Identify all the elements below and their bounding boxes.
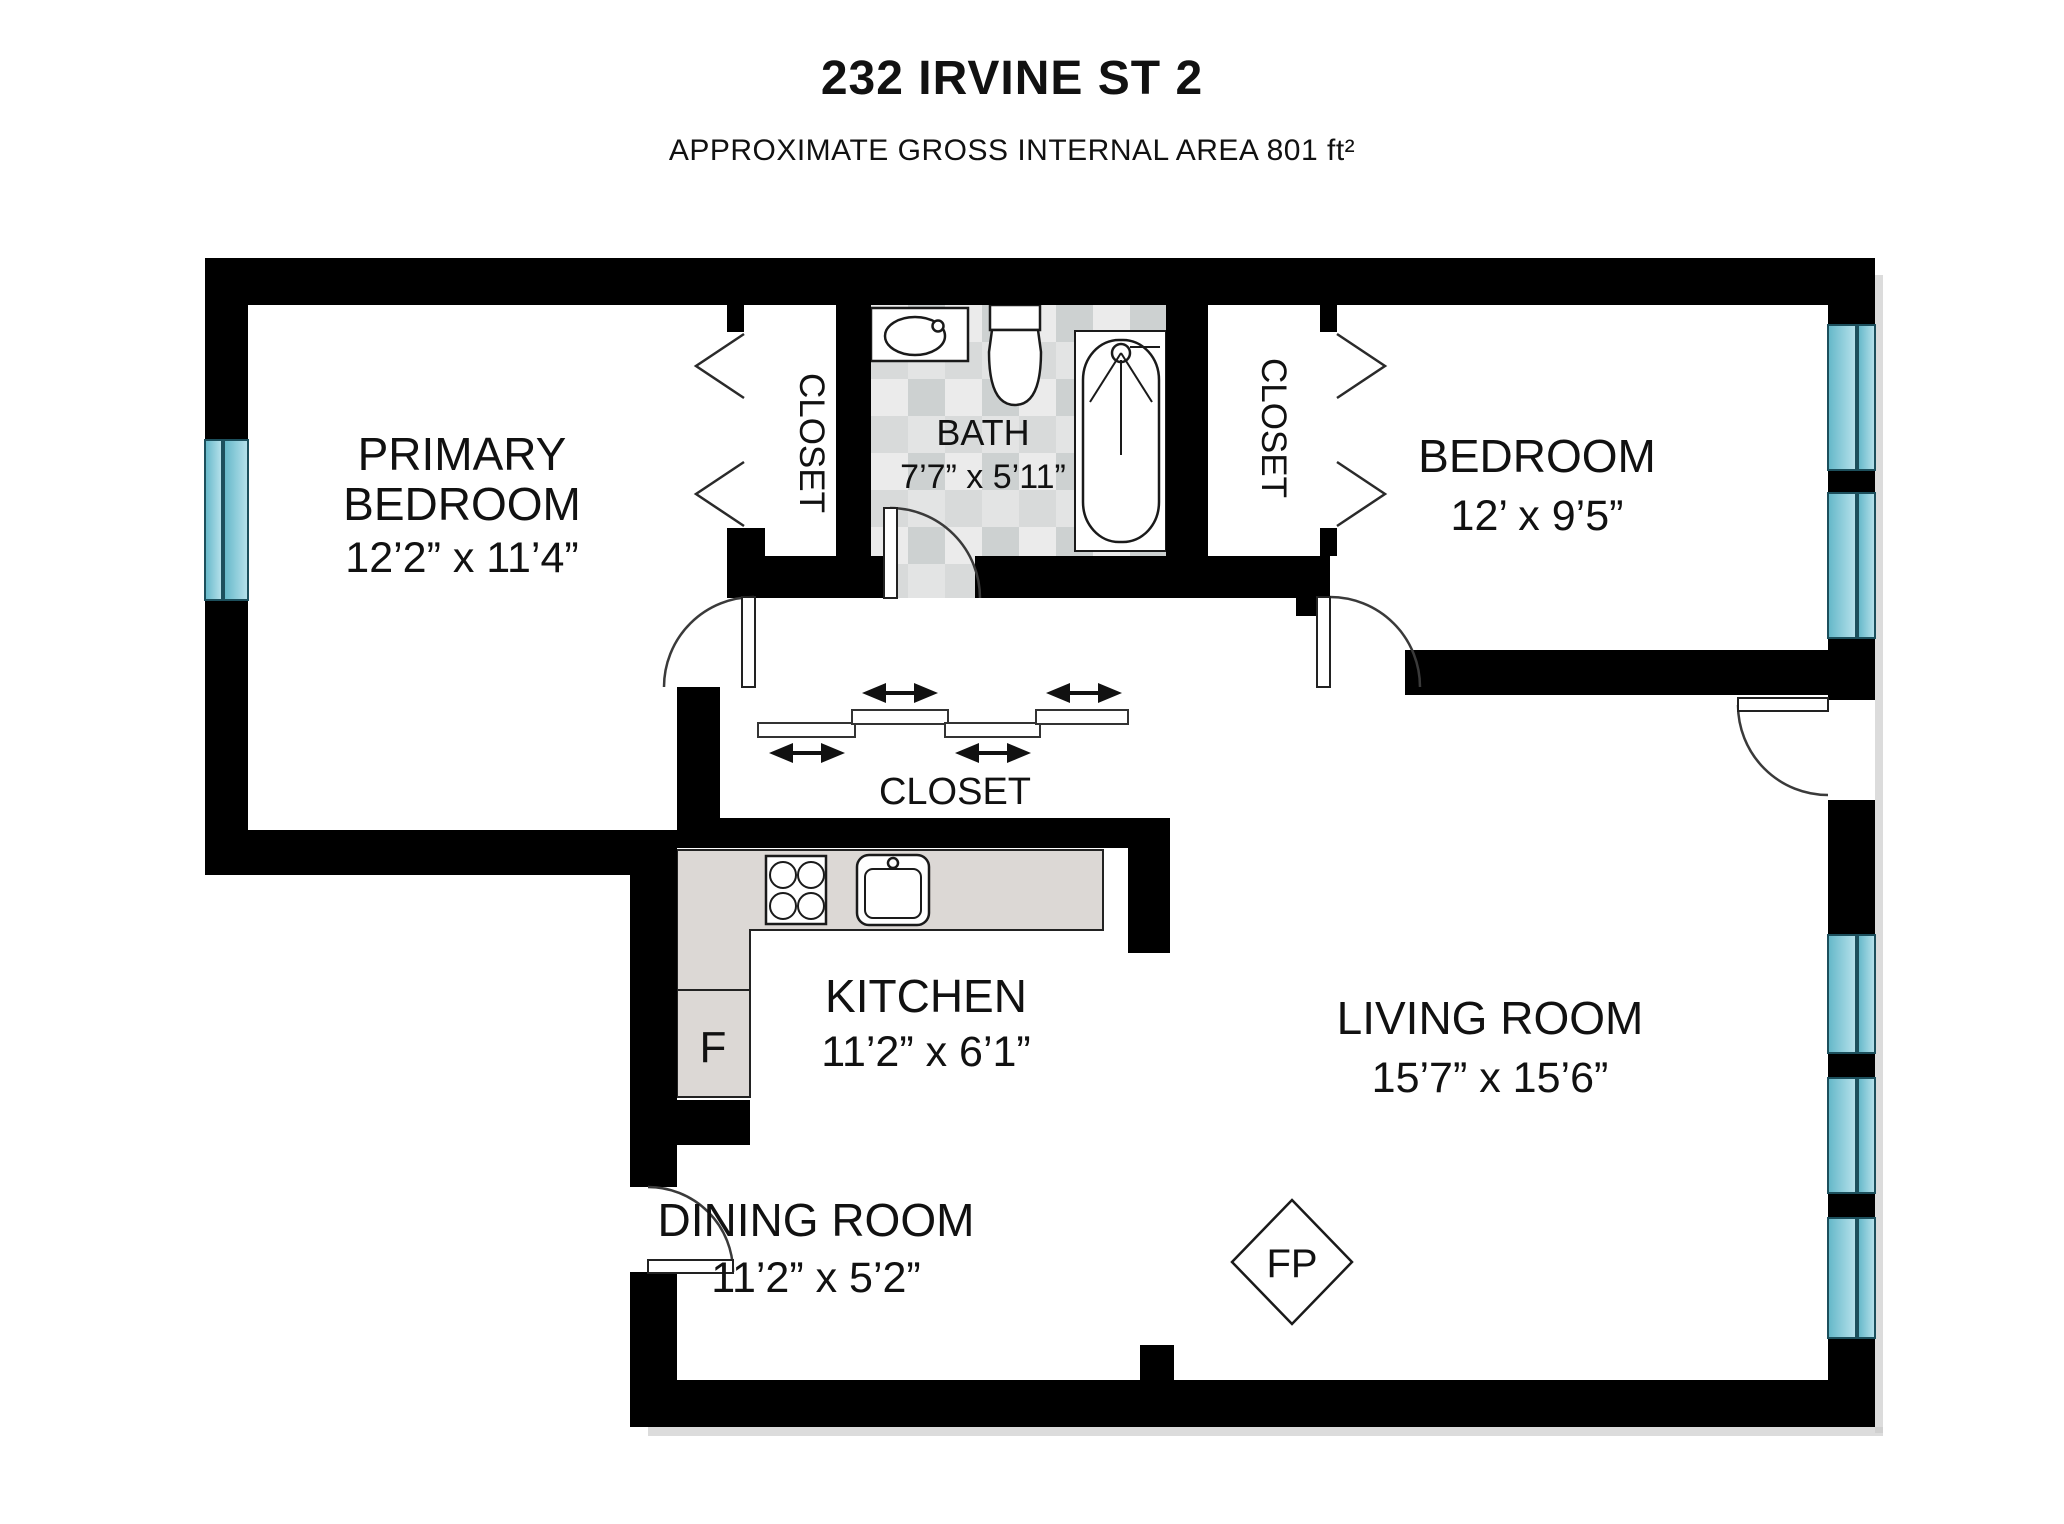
wall: [205, 258, 248, 440]
fireplace-marker: FP: [1266, 1242, 1317, 1286]
room-label-bedroom: BEDROOM: [1418, 430, 1656, 482]
wall: [975, 556, 1330, 598]
stove-icon: [766, 856, 826, 924]
room-dims-bedroom: 12’ x 9’5”: [1451, 492, 1624, 540]
bifold-door-icon: [696, 334, 744, 398]
bifold-door-icon: [1337, 462, 1385, 526]
wall: [1828, 800, 1875, 935]
wall-stub: [727, 305, 744, 332]
door-leaf: [742, 597, 755, 687]
floor-plan-page: 232 IRVINE ST 2 APPROXIMATE GROSS INTERN…: [0, 0, 2064, 1524]
wall: [1166, 305, 1208, 556]
wall-stub: [727, 528, 765, 556]
wall: [836, 305, 871, 598]
wall: [1828, 1193, 1875, 1218]
toilet-bowl-icon: [989, 330, 1041, 405]
room-label-closet-left: CLOSET: [792, 373, 831, 513]
wall: [1405, 650, 1828, 695]
room-label-primary-bedroom-1: PRIMARY: [358, 428, 567, 480]
slide-arrow-icon: [1046, 683, 1122, 703]
door-leaf: [1317, 597, 1330, 687]
page-subtitle: APPROXIMATE GROSS INTERNAL AREA 801 ft²: [669, 134, 1355, 167]
slide-arrow-icon: [862, 683, 938, 703]
floor-plan-svg: 232 IRVINE ST 2 APPROXIMATE GROSS INTERN…: [0, 0, 2064, 1524]
door-leaf: [1738, 698, 1828, 711]
fireplace: FP: [1232, 1200, 1352, 1324]
sliding-door-panel: [852, 710, 948, 724]
wall-stub: [1140, 1345, 1174, 1380]
window: [1828, 1078, 1875, 1193]
wall: [1828, 258, 1875, 325]
door-leaf: [884, 508, 897, 598]
room-dims-living-room: 15’7” x 15’6”: [1372, 1054, 1609, 1102]
bifold-door-icon: [1337, 334, 1385, 398]
shadow-right: [1875, 275, 1883, 1433]
room-label-primary-bedroom-2: BEDROOM: [343, 478, 581, 530]
fridge-marker: F: [700, 1023, 727, 1072]
wall: [205, 258, 1875, 305]
room-label-kitchen: KITCHEN: [825, 970, 1027, 1022]
kitchen-sink-faucet-icon: [888, 858, 898, 868]
kitchen: F KITCHEN 11’2” x 6’1”: [677, 850, 1103, 1097]
bathroom-sink-faucet-icon: [933, 321, 944, 332]
room-label-dining-room: DINING ROOM: [658, 1194, 975, 1246]
wall-stub: [1320, 305, 1337, 332]
door-arc: [1738, 705, 1828, 795]
wall: [630, 830, 677, 1187]
window: [1828, 325, 1875, 470]
window: [1828, 935, 1875, 1053]
wall: [700, 818, 1170, 848]
page-title: 232 IRVINE ST 2: [821, 52, 1203, 105]
room-dims-kitchen: 11’2” x 6’1”: [821, 1028, 1031, 1076]
door-arc: [664, 597, 754, 687]
wall: [1828, 638, 1875, 700]
wall: [630, 1380, 1875, 1427]
wall: [205, 830, 677, 875]
room-dims-primary-bedroom: 12’2” x 11’4”: [345, 534, 578, 582]
wall-stub: [1320, 528, 1337, 556]
window: [205, 440, 248, 600]
wall: [727, 556, 889, 598]
toilet-tank-icon: [990, 305, 1040, 330]
slide-arrow-icon: [955, 743, 1031, 763]
room-label-closet-right: CLOSET: [1254, 358, 1293, 498]
window: [1828, 1218, 1875, 1338]
room-label-closet-hall: CLOSET: [879, 771, 1031, 813]
bathroom: BATH 7’7” x 5’11”: [871, 305, 1166, 598]
window: [1828, 493, 1875, 638]
slide-arrow-icon: [769, 743, 845, 763]
room-label-bath: BATH: [936, 412, 1029, 453]
wall: [1828, 1338, 1875, 1427]
sliding-door-panel: [758, 723, 855, 737]
room-dims-dining-room: 11’2” x 5’2”: [711, 1254, 921, 1302]
wall: [1828, 470, 1875, 493]
wall: [677, 1100, 750, 1145]
shadow-bottom: [648, 1427, 1883, 1436]
room-dims-bath: 7’7” x 5’11”: [900, 458, 1066, 496]
room-label-living-room: LIVING ROOM: [1337, 992, 1644, 1044]
sliding-closet: [758, 683, 1128, 763]
wall: [1828, 1053, 1875, 1078]
bifold-door-icon: [696, 462, 744, 526]
sliding-door-panel: [1036, 710, 1128, 724]
wall: [1128, 818, 1170, 953]
sliding-door-panel: [945, 723, 1040, 737]
